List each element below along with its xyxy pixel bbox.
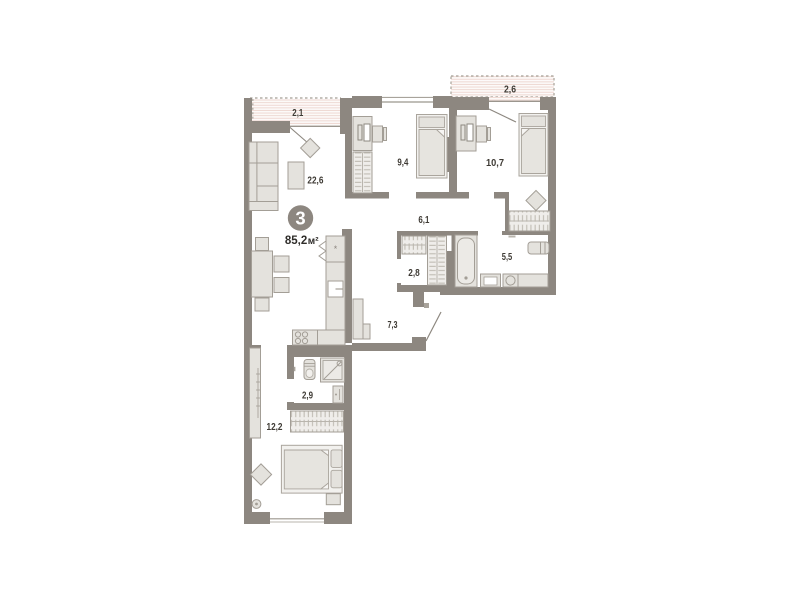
svg-text:5,5: 5,5 [502, 252, 513, 263]
svg-text:3: 3 [295, 208, 305, 229]
svg-text:6,1: 6,1 [418, 215, 429, 226]
svg-text:*: * [334, 244, 338, 254]
svg-text:7,3: 7,3 [388, 320, 398, 331]
svg-text:85,2м²: 85,2м² [285, 235, 319, 247]
svg-text:2,8: 2,8 [408, 268, 420, 279]
svg-text:12,2: 12,2 [267, 422, 283, 433]
svg-text:2,9: 2,9 [302, 390, 313, 401]
svg-text:22,6: 22,6 [307, 176, 323, 187]
svg-text:2,6: 2,6 [504, 84, 516, 95]
svg-text:2,1: 2,1 [292, 108, 303, 119]
svg-text:10,7: 10,7 [486, 158, 504, 169]
svg-text:9,4: 9,4 [397, 157, 408, 168]
